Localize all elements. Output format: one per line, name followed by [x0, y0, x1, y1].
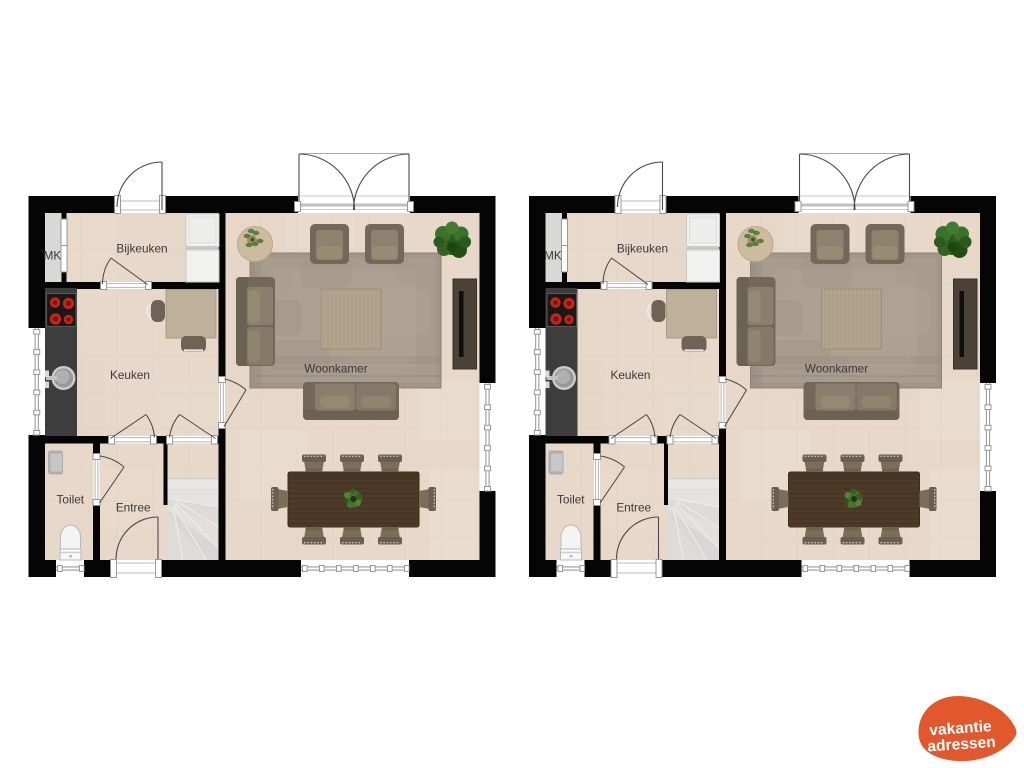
svg-text:Keuken: Keuken — [610, 368, 650, 382]
svg-text:Entree: Entree — [616, 501, 651, 515]
svg-text:Bijkeuken: Bijkeuken — [116, 242, 167, 256]
svg-text:Woonkamer: Woonkamer — [304, 362, 367, 376]
svg-text:MK: MK — [44, 249, 62, 263]
svg-text:Bijkeuken: Bijkeuken — [617, 242, 668, 256]
svg-text:Keuken: Keuken — [110, 368, 150, 382]
svg-text:Toilet: Toilet — [557, 493, 585, 507]
svg-text:Toilet: Toilet — [57, 493, 85, 507]
svg-text:Entree: Entree — [116, 501, 151, 515]
svg-text:Woonkamer: Woonkamer — [805, 362, 868, 376]
svg-text:MK: MK — [544, 249, 562, 263]
